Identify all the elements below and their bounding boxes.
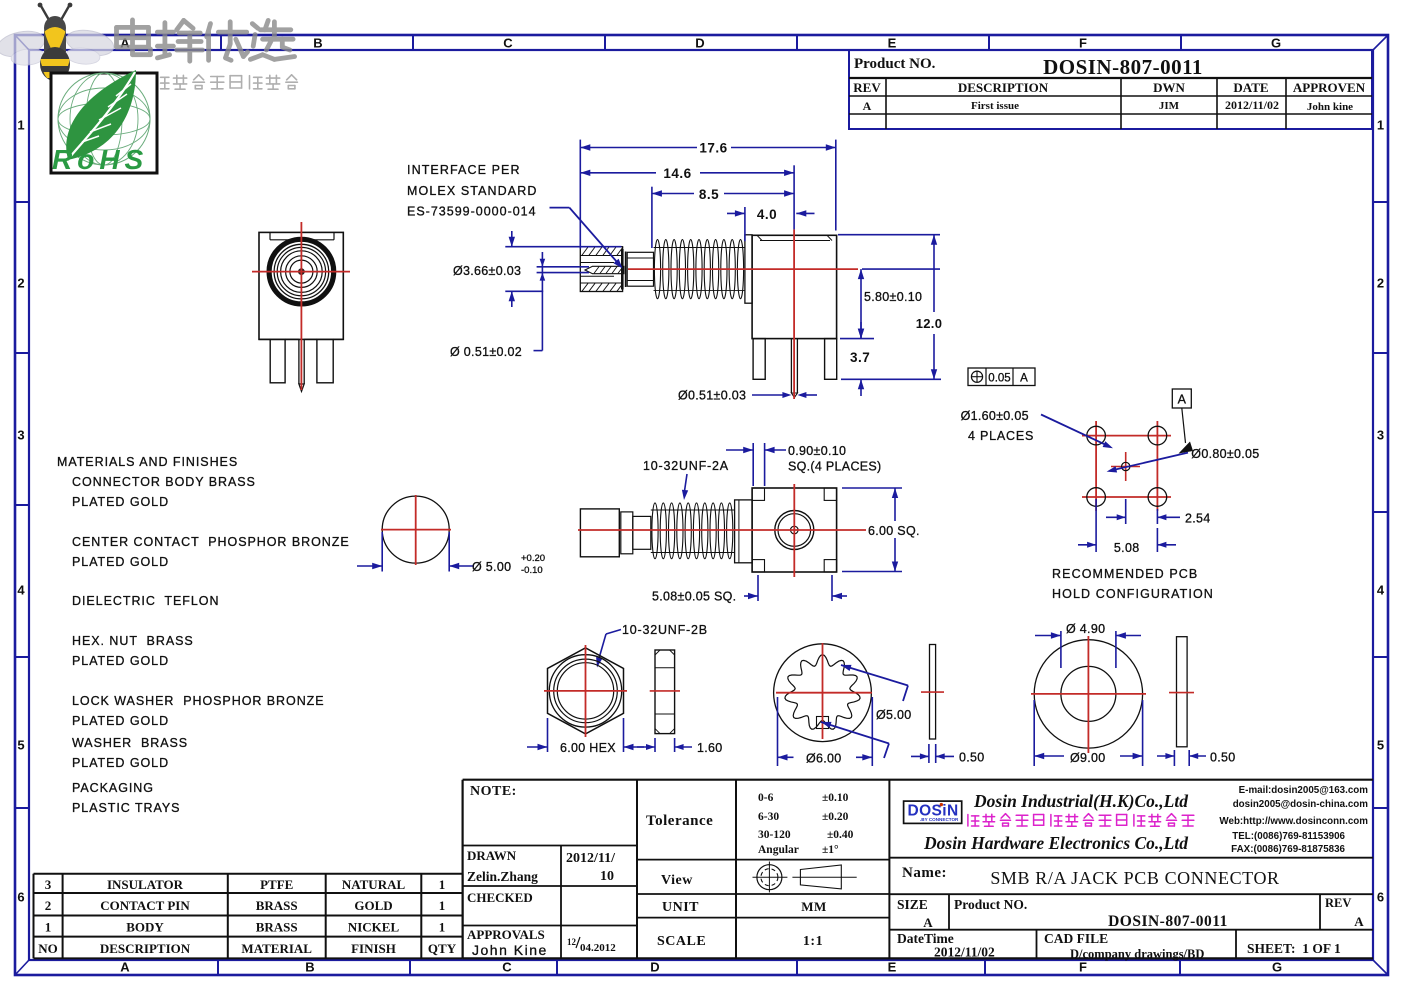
svg-text:Ø 4.90: Ø 4.90 xyxy=(1066,622,1105,636)
svg-text:CAD FILE: CAD FILE xyxy=(1044,931,1108,946)
svg-text:dosin2005@dosin-china.com: dosin2005@dosin-china.com xyxy=(1233,799,1369,810)
svg-text:Ø1.60±0.05: Ø1.60±0.05 xyxy=(961,409,1029,423)
svg-text:Web:http://www.dosinconn.com: Web:http://www.dosinconn.com xyxy=(1219,816,1368,827)
svg-text:View: View xyxy=(661,873,693,888)
svg-text:.BY CONNECTOR: .BY CONNECTOR xyxy=(920,817,959,822)
svg-text:BRASS: BRASS xyxy=(256,898,298,913)
svg-text:Name:: Name: xyxy=(902,865,947,881)
svg-text:Ø0.51±0.03: Ø0.51±0.03 xyxy=(678,389,746,403)
svg-text:4: 4 xyxy=(17,583,25,598)
svg-text:±0.20: ±0.20 xyxy=(822,811,849,823)
svg-text:0.90±0.10: 0.90±0.10 xyxy=(788,444,846,458)
svg-text:LOCK WASHER PHOSPHOR BRONZE: LOCK WASHER PHOSPHOR BRONZE xyxy=(72,694,325,708)
svg-text:Ø 5.00: Ø 5.00 xyxy=(472,560,511,574)
svg-text:Ø 0.51±0.02: Ø 0.51±0.02 xyxy=(450,345,522,359)
svg-text:HEX. NUT BRASS: HEX. NUT BRASS xyxy=(72,634,194,648)
svg-text:ES-73599-0000-014: ES-73599-0000-014 xyxy=(407,205,537,219)
svg-text:WASHER BRASS: WASHER BRASS xyxy=(72,736,188,750)
svg-text:6: 6 xyxy=(1377,890,1384,905)
svg-text:Zelin.Zhang: Zelin.Zhang xyxy=(467,869,538,884)
svg-text:G: G xyxy=(1271,36,1281,51)
svg-text:6-30: 6-30 xyxy=(758,811,779,823)
svg-text:FAX:(0086)769-81875836: FAX:(0086)769-81875836 xyxy=(1231,844,1345,855)
svg-text:DRAWN: DRAWN xyxy=(467,848,517,863)
svg-text:5: 5 xyxy=(1377,738,1384,753)
svg-text:2012/11/02: 2012/11/02 xyxy=(934,945,995,960)
svg-text:0-6: 0-6 xyxy=(758,792,774,804)
svg-text:MATERIALS AND FINISHES: MATERIALS AND FINISHES xyxy=(57,455,238,469)
svg-text:Product NO.: Product NO. xyxy=(854,56,936,72)
svg-text:Ø6.00: Ø6.00 xyxy=(806,752,842,766)
svg-text:1: 1 xyxy=(439,877,446,892)
svg-text:PTFE: PTFE xyxy=(260,877,293,892)
svg-text:JIM: JIM xyxy=(1159,100,1180,112)
svg-text:14.6: 14.6 xyxy=(663,166,691,181)
svg-text:PLATED GOLD: PLATED GOLD xyxy=(72,495,169,509)
svg-text:CHECKED: CHECKED xyxy=(467,890,533,905)
svg-text:PLATED GOLD: PLATED GOLD xyxy=(72,555,169,569)
svg-text:4 PLACES: 4 PLACES xyxy=(968,429,1034,443)
svg-text:C: C xyxy=(503,36,513,51)
svg-text:10-32UNF-2B: 10-32UNF-2B xyxy=(622,623,708,637)
svg-text:E: E xyxy=(888,960,897,975)
svg-text:REV: REV xyxy=(853,80,881,95)
svg-text:CONTACT PIN: CONTACT PIN xyxy=(100,898,190,913)
svg-text:NATURAL: NATURAL xyxy=(342,877,406,892)
svg-text:3.7: 3.7 xyxy=(850,350,870,365)
svg-text:Ø5.00: Ø5.00 xyxy=(876,708,912,722)
svg-text:A: A xyxy=(923,915,933,930)
svg-text:C: C xyxy=(502,960,512,975)
svg-text:Dosin Industrial(H.K)Co.,Ltd: Dosin Industrial(H.K)Co.,Ltd xyxy=(973,791,1188,811)
svg-text:12: 12 xyxy=(567,937,577,947)
svg-text:D/company drawings/BD: D/company drawings/BD xyxy=(1070,947,1204,961)
svg-text:Dosin Hardware Electronics Co.: Dosin Hardware Electronics Co.,Ltd xyxy=(923,833,1188,853)
svg-text:±0.10: ±0.10 xyxy=(822,792,849,804)
svg-text:TEL:(0086)769-81153906: TEL:(0086)769-81153906 xyxy=(1232,831,1345,842)
svg-text:REV: REV xyxy=(1325,896,1351,910)
svg-text:INSULATOR: INSULATOR xyxy=(107,877,184,892)
svg-text:5.08: 5.08 xyxy=(1114,541,1140,555)
svg-text:0.50: 0.50 xyxy=(959,751,985,765)
svg-text:5.08±0.05 SQ.: 5.08±0.05 SQ. xyxy=(652,590,736,604)
svg-text:-0.10: -0.10 xyxy=(521,565,543,576)
svg-text:QTY: QTY xyxy=(428,941,457,956)
svg-text:A: A xyxy=(1178,393,1187,407)
svg-text:RoHS: RoHS xyxy=(52,144,148,175)
svg-text:B: B xyxy=(313,36,322,51)
svg-text:5.80±0.10: 5.80±0.10 xyxy=(864,290,922,304)
svg-text:APPROVALS: APPROVALS xyxy=(467,927,545,942)
svg-text:30-120: 30-120 xyxy=(758,829,791,841)
svg-text:PLATED GOLD: PLATED GOLD xyxy=(72,756,169,770)
svg-text:3: 3 xyxy=(17,428,24,443)
svg-text:G: G xyxy=(1272,960,1282,975)
svg-text:A: A xyxy=(1354,914,1364,929)
svg-text:E-mail:dosin2005@163.com: E-mail:dosin2005@163.com xyxy=(1239,785,1369,796)
svg-text:First issue: First issue xyxy=(971,100,1019,112)
svg-text:DOSIN-807-0011: DOSIN-807-0011 xyxy=(1043,55,1203,79)
svg-text:DWN: DWN xyxy=(1153,80,1185,95)
svg-text:A: A xyxy=(120,960,130,975)
svg-text:MATERIAL: MATERIAL xyxy=(241,941,312,956)
svg-text:A: A xyxy=(1020,373,1028,385)
svg-text:10-32UNF-2A: 10-32UNF-2A xyxy=(643,459,729,473)
svg-text:2012/11/: 2012/11/ xyxy=(566,851,616,866)
svg-text:D: D xyxy=(695,36,704,51)
svg-text:0.50: 0.50 xyxy=(1210,751,1236,765)
svg-text:RECOMMENDED PCB: RECOMMENDED PCB xyxy=(1052,567,1198,581)
svg-text:1: 1 xyxy=(439,920,446,935)
svg-text:2012/11/02: 2012/11/02 xyxy=(1225,98,1279,112)
svg-text:0.05: 0.05 xyxy=(988,373,1010,385)
svg-text:APPROVEN: APPROVEN xyxy=(1293,80,1366,95)
svg-text:Product NO.: Product NO. xyxy=(954,897,1027,912)
svg-text:04.2012: 04.2012 xyxy=(580,942,616,954)
svg-text:2: 2 xyxy=(1377,276,1384,291)
svg-text:CONNECTOR BODY BRASS: CONNECTOR BODY BRASS xyxy=(72,475,256,489)
svg-text:DESCRIPTION: DESCRIPTION xyxy=(958,80,1049,95)
svg-text:SMB R/A JACK PCB CONNECTOR: SMB R/A JACK PCB CONNECTOR xyxy=(990,868,1279,888)
svg-text:UNIT: UNIT xyxy=(662,900,699,915)
svg-text:17.6: 17.6 xyxy=(699,141,727,156)
svg-text:4: 4 xyxy=(1377,583,1385,598)
svg-text:6.00 SQ.: 6.00 SQ. xyxy=(868,524,920,538)
svg-text:GOLD: GOLD xyxy=(354,898,392,913)
svg-text:Ø0.80±0.05: Ø0.80±0.05 xyxy=(1191,447,1259,461)
svg-text:SHEET: 1 OF 1: SHEET: 1 OF 1 xyxy=(1247,941,1341,956)
svg-text:A: A xyxy=(863,99,872,113)
svg-text:PACKAGING: PACKAGING xyxy=(72,781,154,795)
svg-text:F: F xyxy=(1079,960,1087,975)
svg-text:±1°: ±1° xyxy=(822,844,839,856)
svg-text:D: D xyxy=(650,960,659,975)
svg-text:B: B xyxy=(305,960,314,975)
svg-text:±0.40: ±0.40 xyxy=(827,829,854,841)
svg-text:NICKEL: NICKEL xyxy=(348,920,400,935)
svg-text:1: 1 xyxy=(1377,118,1384,133)
svg-text:10: 10 xyxy=(600,869,614,884)
svg-text:INTERFACE PER: INTERFACE PER xyxy=(407,163,521,177)
svg-text:1: 1 xyxy=(45,920,52,935)
svg-text:Angular: Angular xyxy=(758,844,799,856)
svg-text:8.5: 8.5 xyxy=(699,187,719,202)
svg-text:3: 3 xyxy=(1377,428,1384,443)
svg-text:SQ.(4 PLACES): SQ.(4 PLACES) xyxy=(788,460,882,474)
svg-text:Ø9.00: Ø9.00 xyxy=(1070,751,1106,765)
svg-text:BODY: BODY xyxy=(126,920,164,935)
svg-text:FINISH: FINISH xyxy=(351,941,396,956)
svg-text:4.0: 4.0 xyxy=(757,207,777,222)
svg-text:MOLEX STANDARD: MOLEX STANDARD xyxy=(407,184,537,198)
svg-text:PLATED GOLD: PLATED GOLD xyxy=(72,654,169,668)
svg-text:PLASTIC TRAYS: PLASTIC TRAYS xyxy=(72,801,180,815)
svg-text:1: 1 xyxy=(439,898,446,913)
svg-text:SIZE: SIZE xyxy=(897,897,928,912)
svg-text:DESCRIPTION: DESCRIPTION xyxy=(100,941,191,956)
svg-text:SCALE: SCALE xyxy=(657,934,706,949)
svg-text:BRASS: BRASS xyxy=(256,920,298,935)
svg-text:HOLD CONFIGURATION: HOLD CONFIGURATION xyxy=(1052,587,1214,601)
svg-text:Tolerance: Tolerance xyxy=(646,813,713,829)
svg-text:6.00 HEX: 6.00 HEX xyxy=(560,741,616,755)
svg-text:DATE: DATE xyxy=(1233,80,1268,95)
svg-text:E: E xyxy=(888,36,897,51)
svg-text:2: 2 xyxy=(45,898,52,913)
svg-text:1: 1 xyxy=(17,118,24,133)
svg-text:12.0: 12.0 xyxy=(916,316,943,331)
svg-text:5: 5 xyxy=(17,738,24,753)
svg-text:2: 2 xyxy=(17,276,24,291)
svg-text:3: 3 xyxy=(45,877,52,892)
svg-text:John Kine: John Kine xyxy=(472,942,548,958)
svg-text:MM: MM xyxy=(801,899,827,914)
svg-text:DIELECTRIC TEFLON: DIELECTRIC TEFLON xyxy=(72,594,219,608)
svg-text:1.60: 1.60 xyxy=(697,741,723,755)
svg-text:NO: NO xyxy=(38,941,58,956)
svg-text:2.54: 2.54 xyxy=(1185,512,1211,526)
svg-text:DOSIN-807-0011: DOSIN-807-0011 xyxy=(1108,913,1228,930)
svg-text:PLATED GOLD: PLATED GOLD xyxy=(72,714,169,728)
svg-text:6: 6 xyxy=(17,890,24,905)
svg-text:F: F xyxy=(1079,36,1087,51)
svg-text:Ø3.66±0.03: Ø3.66±0.03 xyxy=(453,264,521,278)
svg-text:John kine: John kine xyxy=(1307,101,1353,113)
svg-text:CENTER CONTACT PHOSPHOR BRONZ: CENTER CONTACT PHOSPHOR BRONZE xyxy=(72,535,350,549)
svg-text:NOTE:: NOTE: xyxy=(470,784,517,799)
svg-text:1:1: 1:1 xyxy=(803,934,823,949)
svg-text:+0.20: +0.20 xyxy=(521,553,545,564)
